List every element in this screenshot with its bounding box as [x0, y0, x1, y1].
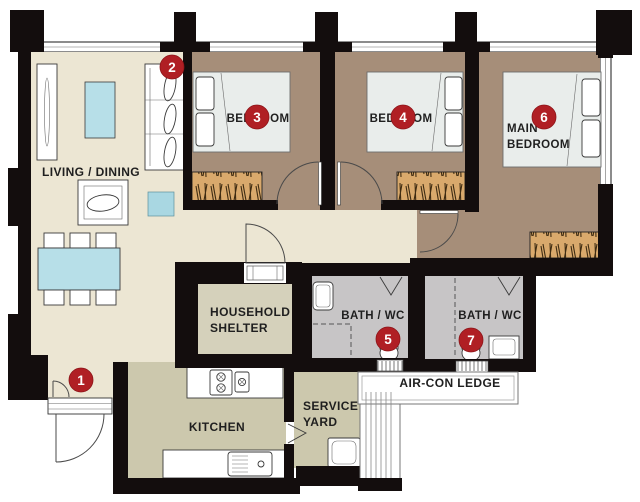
- svg-text:2: 2: [168, 60, 176, 75]
- household-shelter-floor: [198, 284, 292, 354]
- svg-text:7: 7: [467, 333, 475, 348]
- svg-text:4: 4: [399, 110, 407, 125]
- dining-chair: [96, 290, 116, 305]
- main-bedroom-alcove-floor: [417, 210, 479, 262]
- service-yard-label-2: YARD: [303, 415, 338, 429]
- pillow: [196, 113, 214, 146]
- marker-7: 7: [459, 328, 483, 352]
- pillow: [445, 77, 462, 110]
- bath5-vent: [377, 360, 403, 371]
- main-bedroom-door-leaf: [420, 211, 458, 214]
- entrance-door-swing: [56, 414, 104, 462]
- floor-plan-svg: LIVING / DINING BEDROOM BEDROOM MAIN BED…: [0, 0, 640, 502]
- bedroom3-door-leaf: [319, 162, 322, 205]
- bedroom3-wardrobe: [192, 172, 262, 202]
- pillow: [582, 120, 600, 157]
- tv-console: [37, 64, 57, 160]
- living-dining-label: LIVING / DINING: [42, 165, 140, 179]
- dining-chair: [44, 233, 64, 248]
- pillow: [196, 77, 214, 110]
- dining-chair: [44, 290, 64, 305]
- household-shelter-label-2: SHELTER: [210, 321, 268, 335]
- service-yard-label-1: SERVICE: [303, 399, 358, 413]
- coffee-table: [85, 82, 115, 138]
- bedroom4-wardrobe: [397, 172, 465, 202]
- dining-chair: [70, 233, 90, 248]
- dining-chair: [70, 290, 90, 305]
- marker-4: 4: [391, 105, 415, 129]
- corridor-floor: [185, 205, 417, 265]
- main-bedroom-label-2: BEDROOM: [507, 139, 570, 151]
- dining-set: [38, 233, 120, 305]
- stove: [210, 370, 232, 395]
- kitchen-bottom-counter: [163, 450, 286, 478]
- svg-text:6: 6: [540, 110, 548, 125]
- entrance-threshold: [48, 398, 112, 414]
- aircon-ledge-label: AIR-CON LEDGE: [399, 376, 500, 390]
- svg-text:3: 3: [253, 110, 261, 125]
- bedroom4-bed: [367, 72, 463, 152]
- bath7-label: BATH / WC: [458, 310, 521, 322]
- armchair: [78, 180, 128, 225]
- kitchen-top-counter: [187, 366, 283, 398]
- marker-5: 5: [376, 327, 400, 351]
- side-table: [148, 192, 174, 216]
- pillow: [445, 113, 462, 146]
- dining-table: [38, 248, 120, 290]
- household-shelter-label-1: HOUSEHOLD: [210, 305, 290, 319]
- washing-machine: [328, 438, 360, 467]
- main-bedroom-label-1: MAIN: [507, 123, 538, 135]
- svg-text:1: 1: [77, 373, 85, 388]
- svg-text:5: 5: [384, 332, 392, 347]
- bedroom4-door-leaf: [338, 162, 341, 205]
- bath7-sink: [489, 336, 519, 359]
- pillow: [582, 79, 600, 116]
- marker-2: 2: [160, 55, 184, 79]
- main-bedroom-wardrobe: [530, 232, 600, 258]
- marker-1: 1: [69, 368, 93, 392]
- sofa: [145, 64, 184, 170]
- dining-chair: [96, 233, 116, 248]
- marker-3: 3: [245, 105, 269, 129]
- marker-6: 6: [532, 105, 556, 129]
- kitchen-label: KITCHEN: [189, 420, 245, 434]
- shelter-door-threshold: [247, 266, 283, 280]
- bath7-vent: [456, 361, 488, 372]
- bath5-label: BATH / WC: [341, 310, 404, 322]
- floor-plan: LIVING / DINING BEDROOM BEDROOM MAIN BED…: [0, 0, 640, 502]
- bedroom3-bed: [193, 72, 290, 152]
